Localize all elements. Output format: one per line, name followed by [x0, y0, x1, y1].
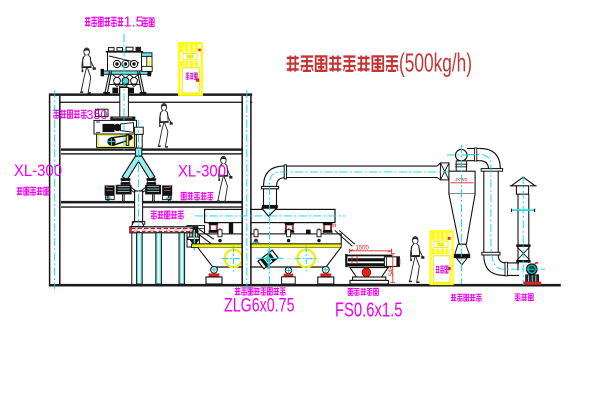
svg-text:350: 350	[87, 108, 108, 122]
svg-text:XL-300: XL-300	[178, 163, 226, 181]
svg-text:1500: 1500	[356, 246, 370, 252]
svg-text:ZLG6x0.75: ZLG6x0.75	[224, 295, 295, 317]
svg-text:FS0.6x1.5: FS0.6x1.5	[335, 300, 403, 322]
svg-text:(500kg/h): (500kg/h)	[399, 48, 472, 78]
svg-text:548: 548	[389, 266, 395, 277]
svg-text:1.5: 1.5	[124, 15, 144, 31]
